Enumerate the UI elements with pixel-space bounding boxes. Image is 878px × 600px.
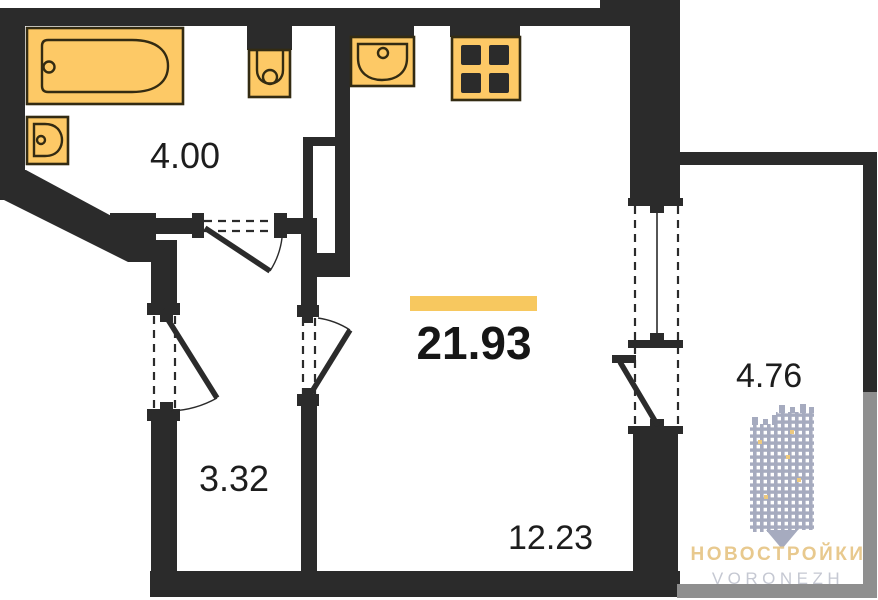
toilet-icon <box>247 25 292 97</box>
door-window-openings <box>154 206 678 426</box>
highlight-bar <box>410 296 537 311</box>
building-watermark-icon <box>750 404 814 549</box>
room-door <box>308 318 350 398</box>
balcony-top-wall <box>680 152 877 165</box>
bath-sink-icon <box>27 117 68 164</box>
area-label-total: 21.93 <box>400 320 548 366</box>
stove-icon <box>450 26 520 100</box>
watermark-city: VORONEZH <box>674 570 878 587</box>
kitchen-sink-icon <box>348 26 414 86</box>
floor-plan: 4.00 3.32 21.93 12.23 4.76 НОВОСТРОЙКИ V… <box>0 0 878 600</box>
bathroom-door <box>205 228 282 271</box>
area-label-living-zone: 12.23 <box>508 521 593 555</box>
area-label-balcony: 4.76 <box>736 359 802 393</box>
area-label-hallway: 3.32 <box>199 461 269 497</box>
bathtub-icon <box>27 28 183 104</box>
area-label-bathroom: 4.00 <box>150 138 220 174</box>
watermark-brand: НОВОСТРОЙКИ <box>674 545 878 564</box>
hallway-left-door <box>162 310 217 411</box>
